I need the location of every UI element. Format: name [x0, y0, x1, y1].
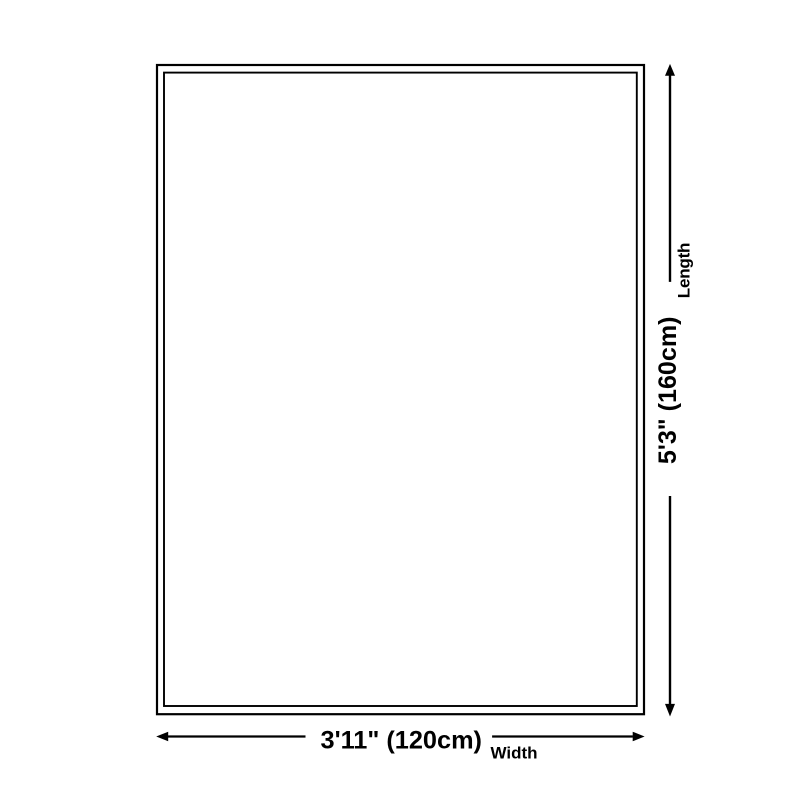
svg-text:Width: Width [491, 743, 538, 762]
svg-text:3'11" (120cm): 3'11" (120cm) [321, 727, 482, 755]
svg-text:5'3" (160cm): 5'3" (160cm) [654, 316, 682, 464]
svg-text:Length: Length [674, 243, 693, 298]
